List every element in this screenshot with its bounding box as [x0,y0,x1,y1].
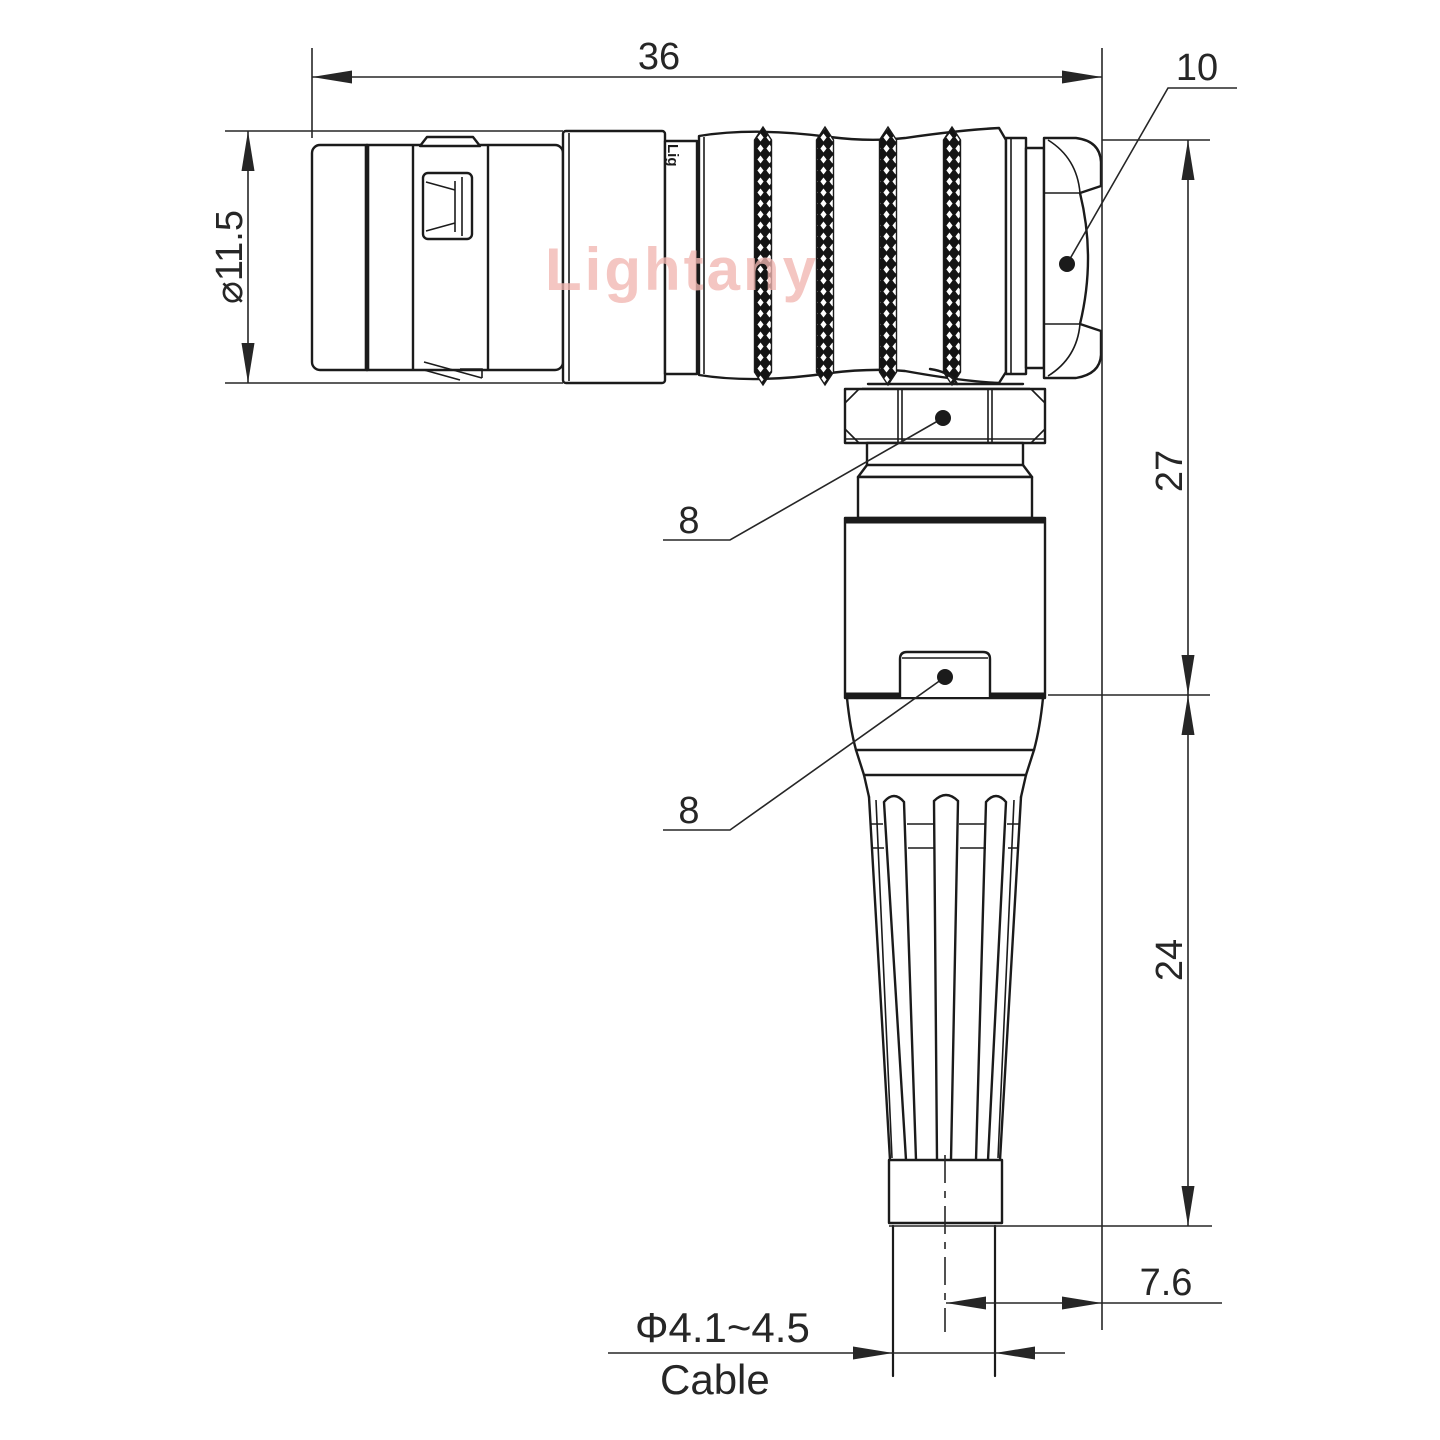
dim-36-label: 36 [638,36,680,78]
dimension-cable-diameter: Φ4.1~4.5 Cable [608,1304,1065,1403]
leader-dot-icon [937,669,953,685]
arrow-up-icon [1182,695,1195,735]
rib-3 [976,796,1006,1160]
leader-dot-icon [935,410,951,426]
rib-2 [934,795,958,1160]
arrow-right-icon [853,1347,893,1360]
boot-cone-inner-edges [876,800,1014,1158]
elbow [845,369,1045,443]
body-stack [845,443,1045,698]
gland-taper-3 [864,775,1026,797]
rib-groove-ticks [871,824,1019,848]
watermark-text: Lightany [545,236,819,303]
leader-dot-icon [1059,256,1075,272]
back-ring-and-coupling-nut [1006,138,1101,378]
back-spacer [1026,148,1044,368]
arrow-down-icon [242,343,255,383]
dim-11-5-label: ⌀11.5 [209,210,251,304]
knurl-band-2 [817,127,834,385]
shell-logo-marking: Lig [664,144,681,167]
dim-24-label: 24 [1149,939,1191,981]
dim-8a-label: 8 [678,500,699,542]
dim-10-label: 10 [1176,47,1218,89]
arrow-down-icon [1182,1186,1195,1226]
knurl-band-3 [880,127,897,385]
housing-top-band [845,518,1045,524]
back-ring [1006,138,1026,374]
arrow-left-icon [995,1347,1035,1360]
arrow-right-icon [1062,1297,1102,1310]
arrow-up-icon [242,131,255,171]
drawing-svg: Lightany Lig 36 10 ⌀11.5 27 24 [0,0,1440,1440]
gland-taper-1 [847,698,1043,750]
shell-top-tab [420,137,480,146]
dim-27-label: 27 [1149,450,1191,492]
cable-diameter-label: Φ4.1~4.5 [635,1304,810,1351]
arrow-left-icon [312,71,352,84]
neck [867,443,1023,465]
neck-flare [858,465,1032,477]
leader-line-8b [663,677,945,830]
gland-taper-2 [856,750,1034,775]
knurl-band-4 [944,127,961,385]
technical-drawing-right-angle-plug: Lightany Lig 36 10 ⌀11.5 27 24 [0,0,1440,1440]
arrow-down-icon [1182,655,1195,695]
rib-1 [884,796,916,1160]
cable-word-label: Cable [660,1356,770,1403]
dimension-side-offset-7-6: 7.6 [946,1262,1222,1310]
strain-relief [847,698,1043,1223]
arrow-up-icon [1182,140,1195,180]
arrow-right-icon [1062,71,1102,84]
dim-8b-label: 8 [678,790,699,832]
coupling-nut [1044,138,1101,378]
upper-cylinder [858,477,1032,518]
dim-7-6-label: 7.6 [1140,1262,1193,1304]
arrow-left-icon [946,1297,986,1310]
